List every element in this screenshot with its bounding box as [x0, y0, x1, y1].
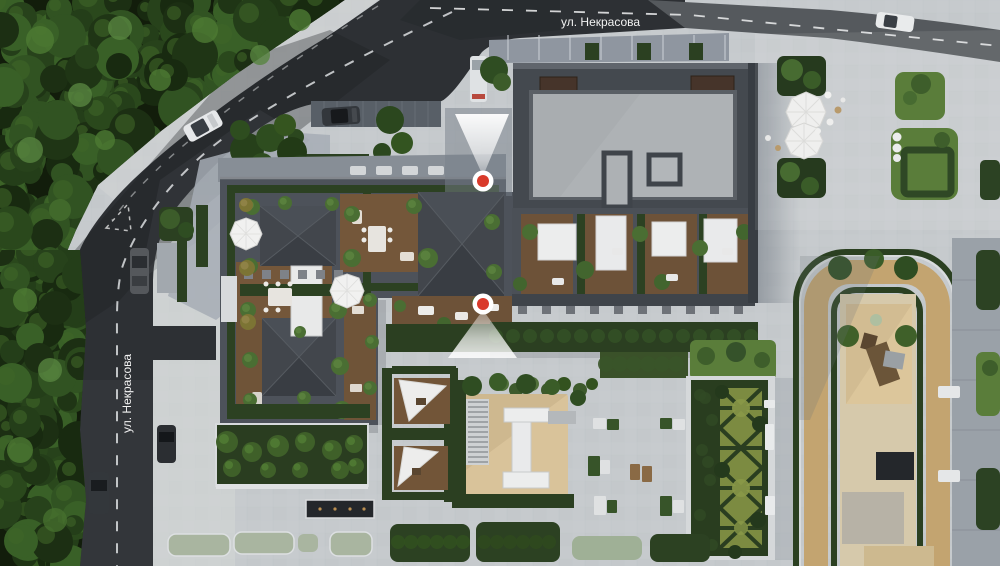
svg-text:ул. Некрасова: ул. Некрасова — [561, 15, 640, 29]
svg-text:ул. Некрасова: ул. Некрасова — [120, 354, 134, 433]
